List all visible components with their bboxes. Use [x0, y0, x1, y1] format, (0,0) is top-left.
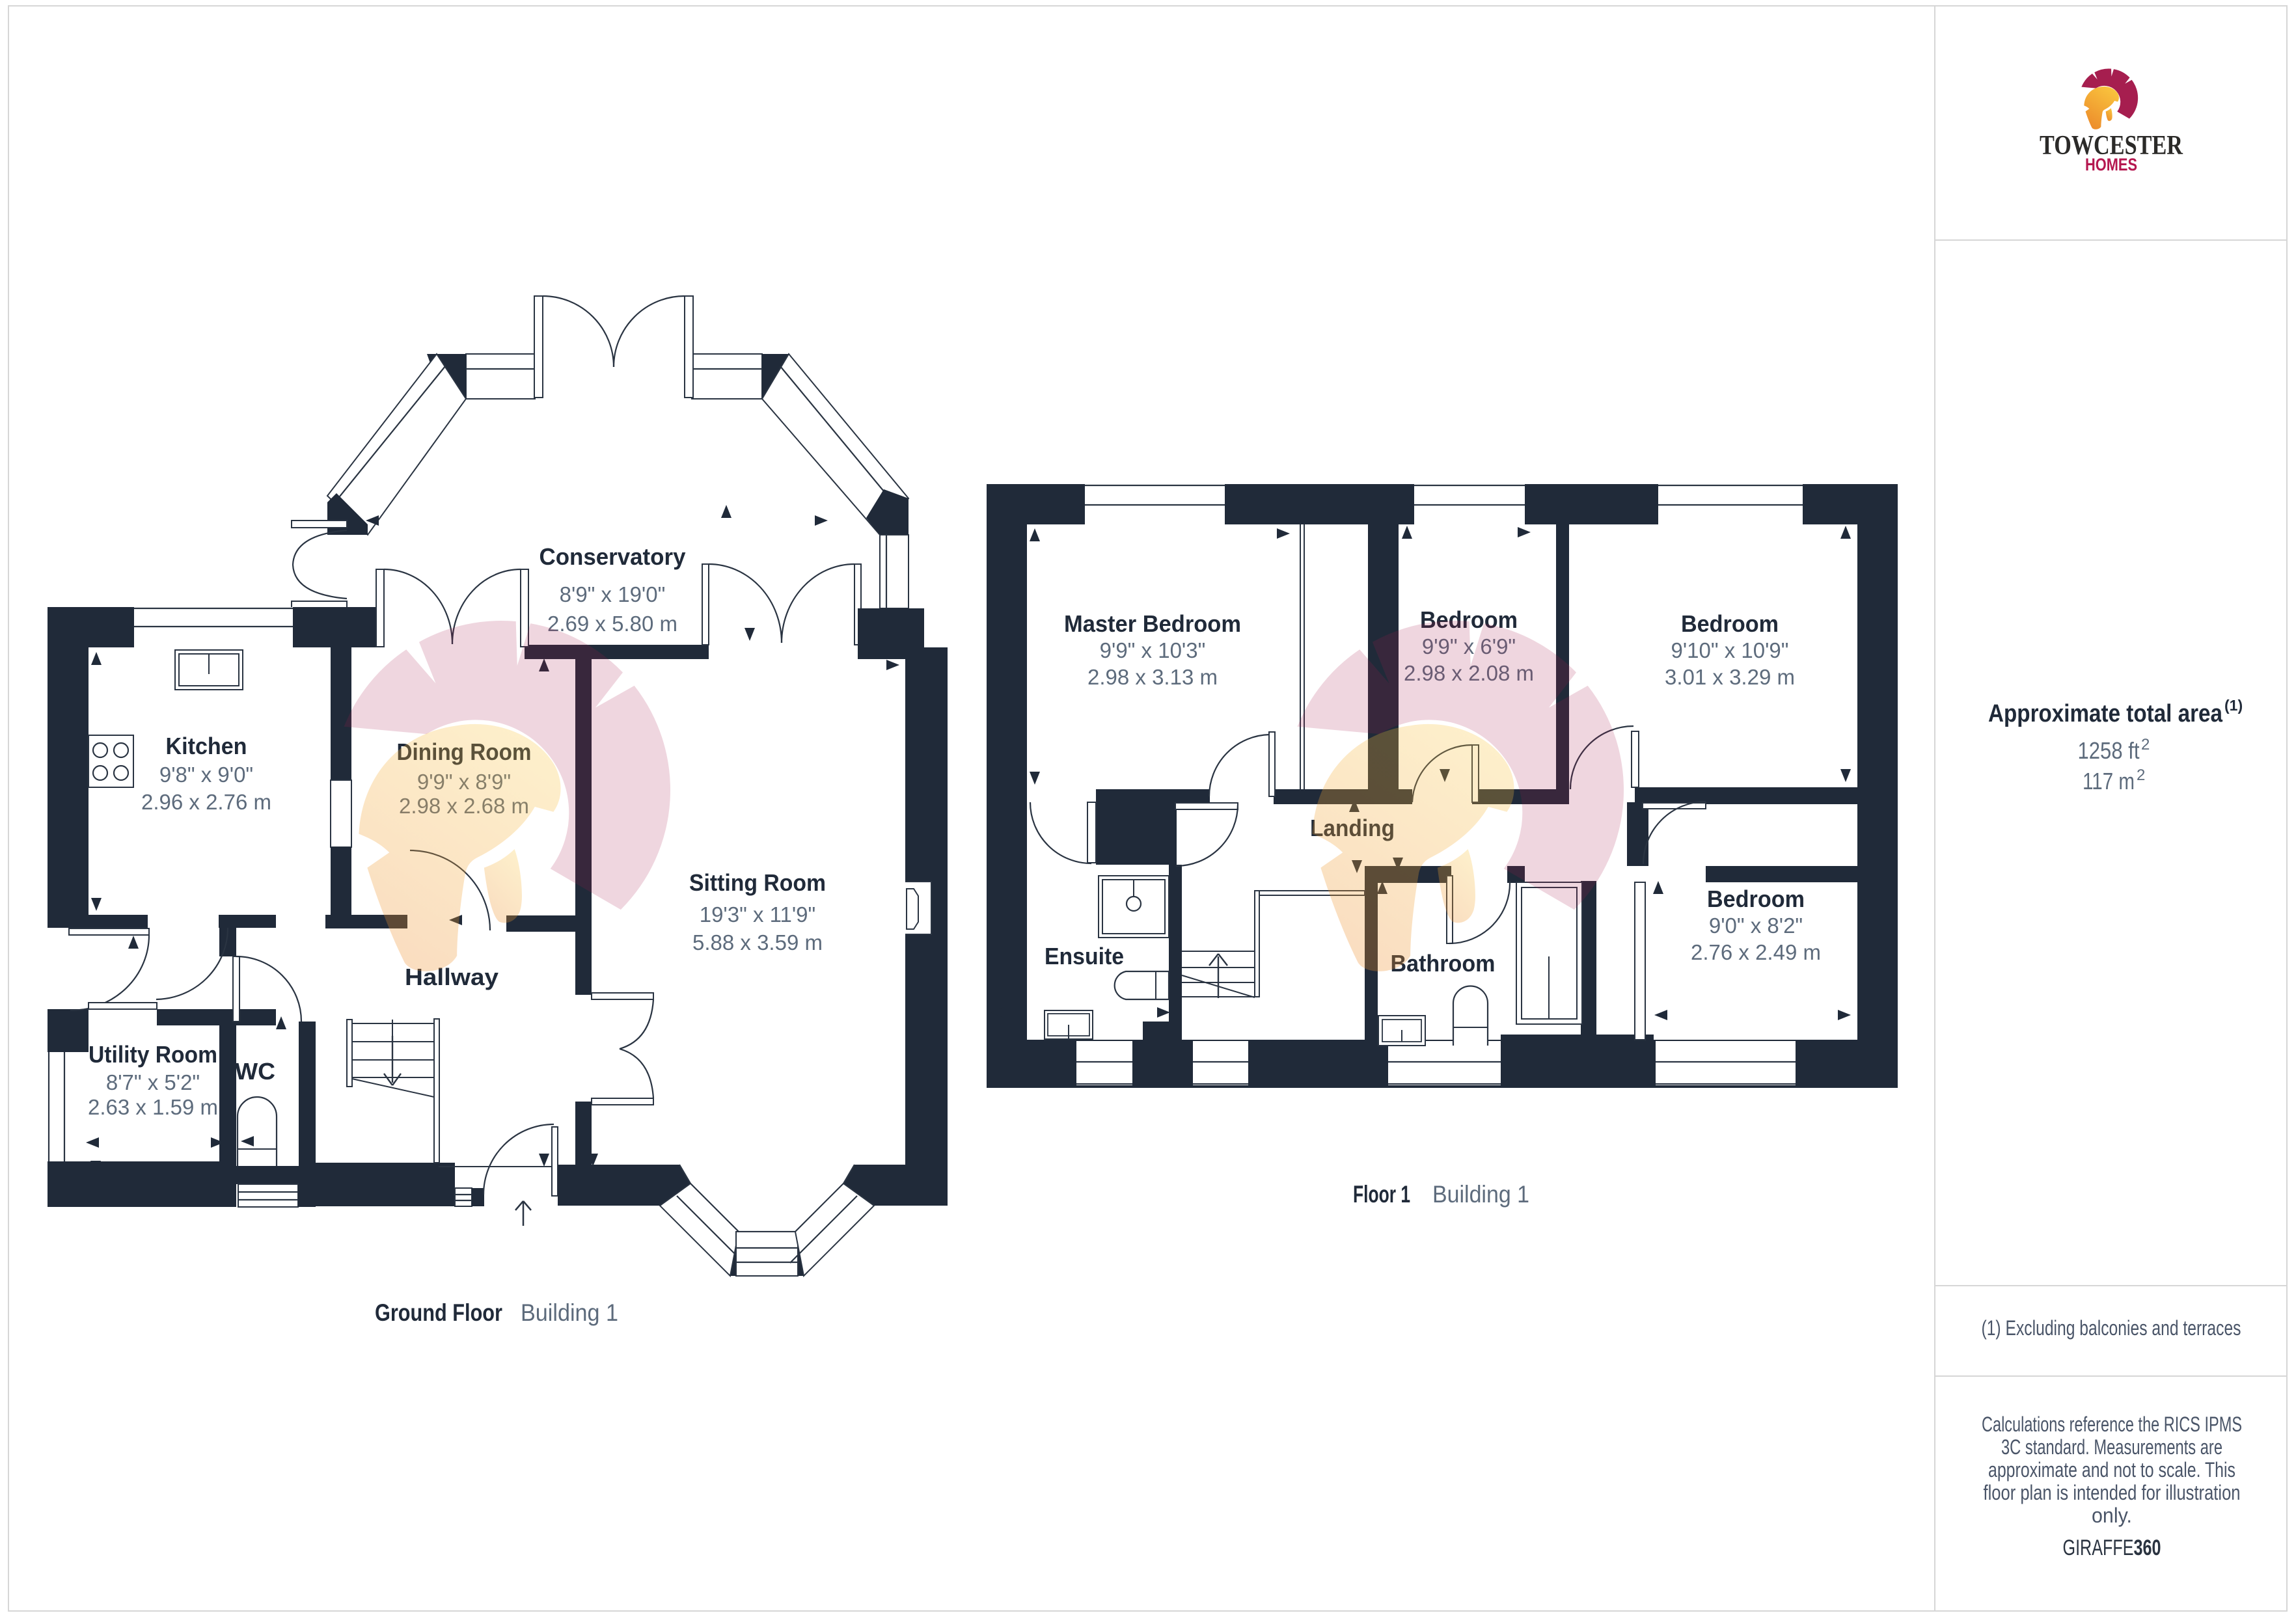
- svg-text:approximate and not to scale.: approximate and not to scale. This: [1988, 1458, 2235, 1482]
- svg-text:3.01 x 3.29 m: 3.01 x 3.29 m: [1665, 665, 1795, 689]
- svg-text:Ground Floor: Ground Floor: [375, 1299, 502, 1326]
- svg-text:floor plan is intended for ill: floor plan is intended for illustration: [1984, 1481, 2241, 1504]
- svg-text:WC: WC: [235, 1058, 275, 1085]
- svg-text:Bedroom: Bedroom: [1707, 886, 1805, 912]
- svg-text:9'0" x 8'2": 9'0" x 8'2": [1709, 913, 1803, 938]
- svg-text:1258 ft: 1258 ft: [2078, 737, 2140, 764]
- svg-text:HOMES: HOMES: [2085, 155, 2137, 174]
- svg-text:Building 1: Building 1: [521, 1299, 618, 1326]
- svg-text:2.98 x 3.13 m: 2.98 x 3.13 m: [1087, 665, 1218, 689]
- svg-text:9'9" x 10'3": 9'9" x 10'3": [1100, 638, 1206, 662]
- svg-text:2: 2: [2141, 736, 2150, 753]
- svg-text:2.96 x 2.76 m: 2.96 x 2.76 m: [141, 790, 271, 814]
- svg-text:Sitting Room: Sitting Room: [689, 869, 826, 896]
- svg-text:8'9" x 19'0": 8'9" x 19'0": [560, 582, 666, 606]
- svg-text:Building 1: Building 1: [1432, 1181, 1529, 1208]
- svg-text:5.88 x 3.59 m: 5.88 x 3.59 m: [692, 930, 823, 954]
- svg-text:Approximate total area: Approximate total area: [1988, 700, 2223, 727]
- svg-text:2.76 x 2.49 m: 2.76 x 2.49 m: [1691, 940, 1821, 964]
- svg-text:only.: only.: [2092, 1504, 2132, 1527]
- svg-text:Bedroom: Bedroom: [1681, 610, 1779, 637]
- svg-text:Utility Room: Utility Room: [89, 1041, 217, 1068]
- svg-text:Ensuite: Ensuite: [1045, 943, 1124, 969]
- svg-text:2.63 x 1.59 m: 2.63 x 1.59 m: [88, 1095, 218, 1119]
- svg-text:(1) Excluding balconies and te: (1) Excluding balconies and terraces: [1982, 1316, 2241, 1340]
- svg-text:19'3" x 11'9": 19'3" x 11'9": [700, 902, 816, 927]
- svg-text:(1): (1): [2224, 697, 2243, 714]
- svg-text:Conservatory: Conservatory: [540, 543, 686, 570]
- svg-text:3C standard. Measurements are: 3C standard. Measurements are: [2001, 1435, 2222, 1459]
- svg-text:GIRAFFE360: GIRAFFE360: [2063, 1536, 2161, 1560]
- svg-text:Kitchen: Kitchen: [166, 733, 247, 759]
- svg-text:9'10" x 10'9": 9'10" x 10'9": [1671, 638, 1789, 662]
- svg-text:9'8" x 9'0": 9'8" x 9'0": [159, 763, 253, 787]
- svg-text:Floor 1: Floor 1: [1353, 1181, 1410, 1208]
- svg-text:117 m: 117 m: [2083, 768, 2135, 794]
- svg-text:2.69 x 5.80 m: 2.69 x 5.80 m: [547, 612, 677, 636]
- svg-text:8'7" x 5'2": 8'7" x 5'2": [106, 1070, 200, 1094]
- svg-text:Calculations reference the RIC: Calculations reference the RICS IPMS: [1982, 1413, 2242, 1436]
- svg-text:Master Bedroom: Master Bedroom: [1064, 610, 1241, 637]
- svg-text:2: 2: [2137, 766, 2145, 784]
